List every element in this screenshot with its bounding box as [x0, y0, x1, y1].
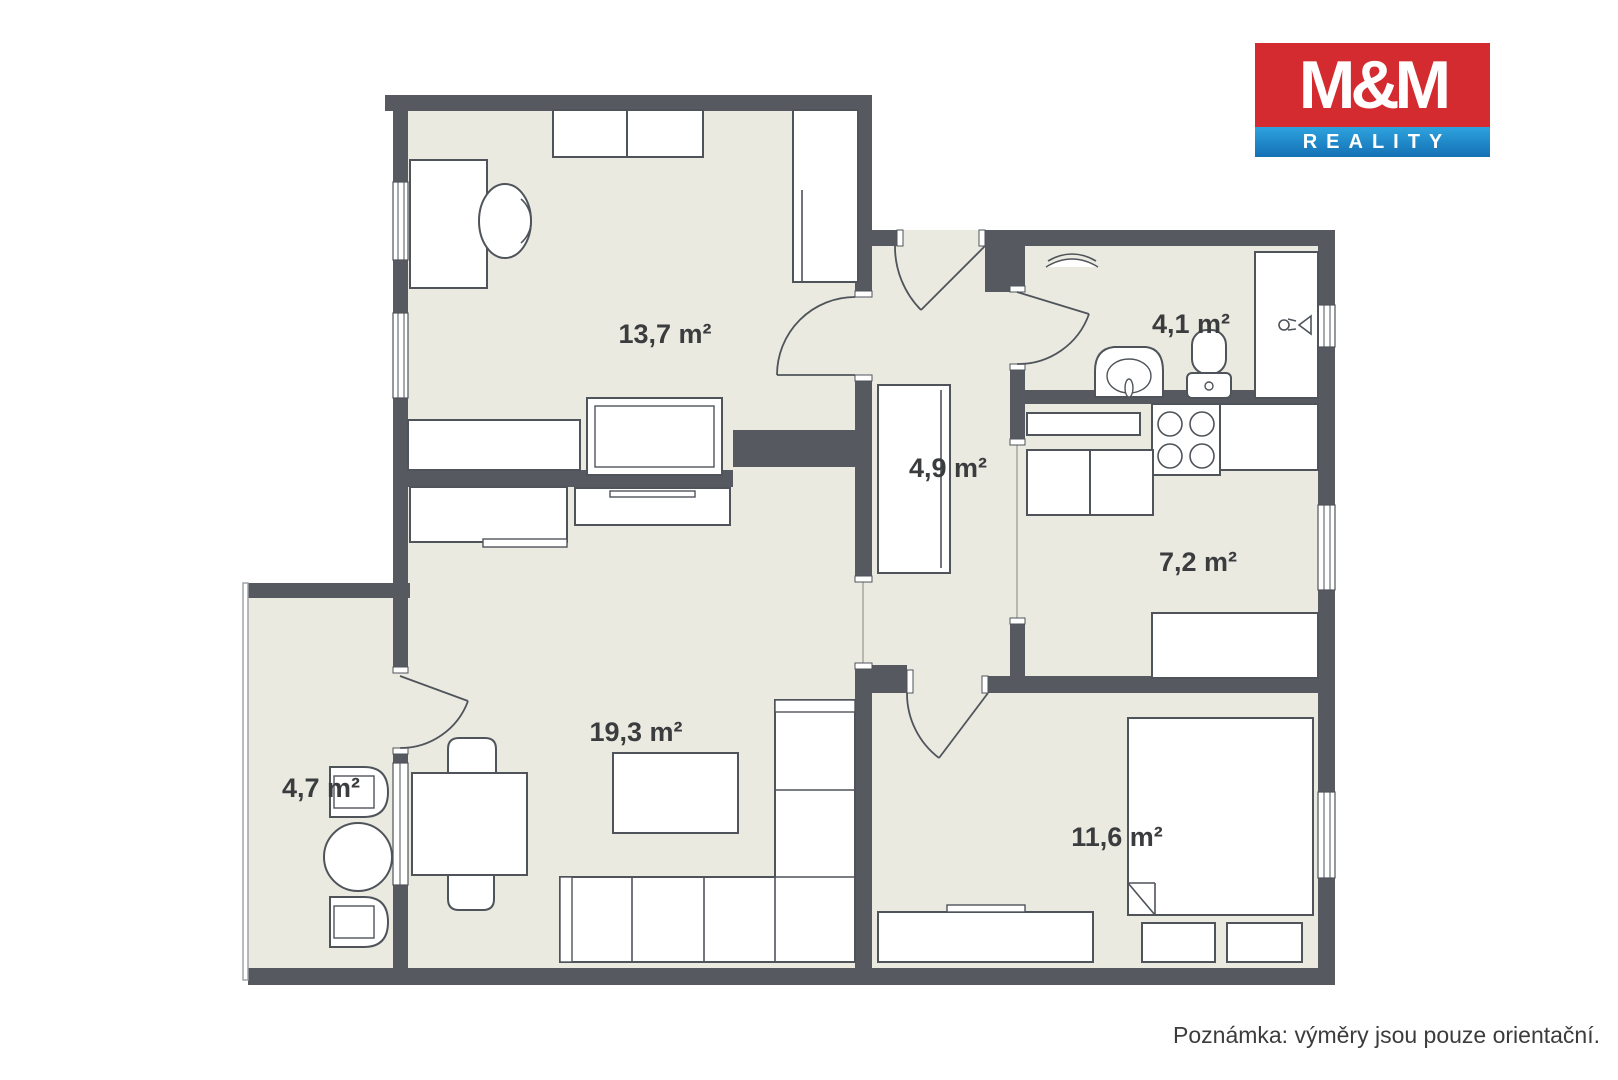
mm-reality-logo: M&M REALITY: [1255, 43, 1490, 157]
counter: [1027, 413, 1140, 435]
footer-note: Poznámka: výměry jsou pouze orientační.: [800, 1022, 1600, 1049]
nightstand: [1227, 923, 1302, 962]
window-icon: [1318, 305, 1335, 347]
coffee-table: [613, 753, 738, 833]
dresser: [878, 912, 1093, 962]
cabinet: [553, 110, 627, 157]
room-label-bedroom: 11,6 m²: [1071, 822, 1163, 852]
cabinet: [1027, 450, 1090, 515]
cabinet: [1090, 450, 1153, 515]
nightstand: [1142, 923, 1215, 962]
chair: [448, 738, 496, 773]
room-label-upper: 13,7 m²: [618, 319, 711, 349]
balcony-window-icon: [393, 763, 408, 885]
sideboard: [408, 420, 580, 470]
window-icon: [393, 313, 408, 398]
logo-mm-text: M&M: [1255, 43, 1490, 127]
kitchen-unit: [1152, 613, 1318, 678]
logo-reality-text: REALITY: [1255, 127, 1490, 157]
room-label-hallway: 4,9 m²: [909, 453, 987, 483]
chair: [448, 875, 494, 910]
desk-chair: [479, 184, 531, 258]
room-label-bathroom: 4,1 m²: [1152, 309, 1230, 339]
dining-table: [412, 773, 527, 875]
desk: [410, 160, 487, 288]
window-icon: [1318, 792, 1335, 878]
toilet: [1187, 330, 1231, 398]
counter: [1220, 404, 1318, 470]
floorplan-drawing: 13,7 m² 4,1 m² 4,9 m² 7,2 m² 19,3 m² 4,7…: [0, 0, 1618, 1080]
cabinet: [627, 110, 703, 157]
room-label-living: 19,3 m²: [589, 717, 682, 747]
stove: [1152, 404, 1220, 475]
balcony-table: [324, 823, 392, 891]
sideboard: [410, 487, 567, 542]
floorplan-page: 13,7 m² 4,1 m² 4,9 m² 7,2 m² 19,3 m² 4,7…: [0, 0, 1618, 1080]
window-icon: [1318, 505, 1335, 590]
room-label-balcony: 4,7 m²: [282, 773, 360, 803]
window-icon: [393, 182, 408, 260]
room-label-kitchen: 7,2 m²: [1159, 547, 1237, 577]
shower: [1255, 252, 1318, 398]
balcony-railing: [243, 583, 248, 980]
